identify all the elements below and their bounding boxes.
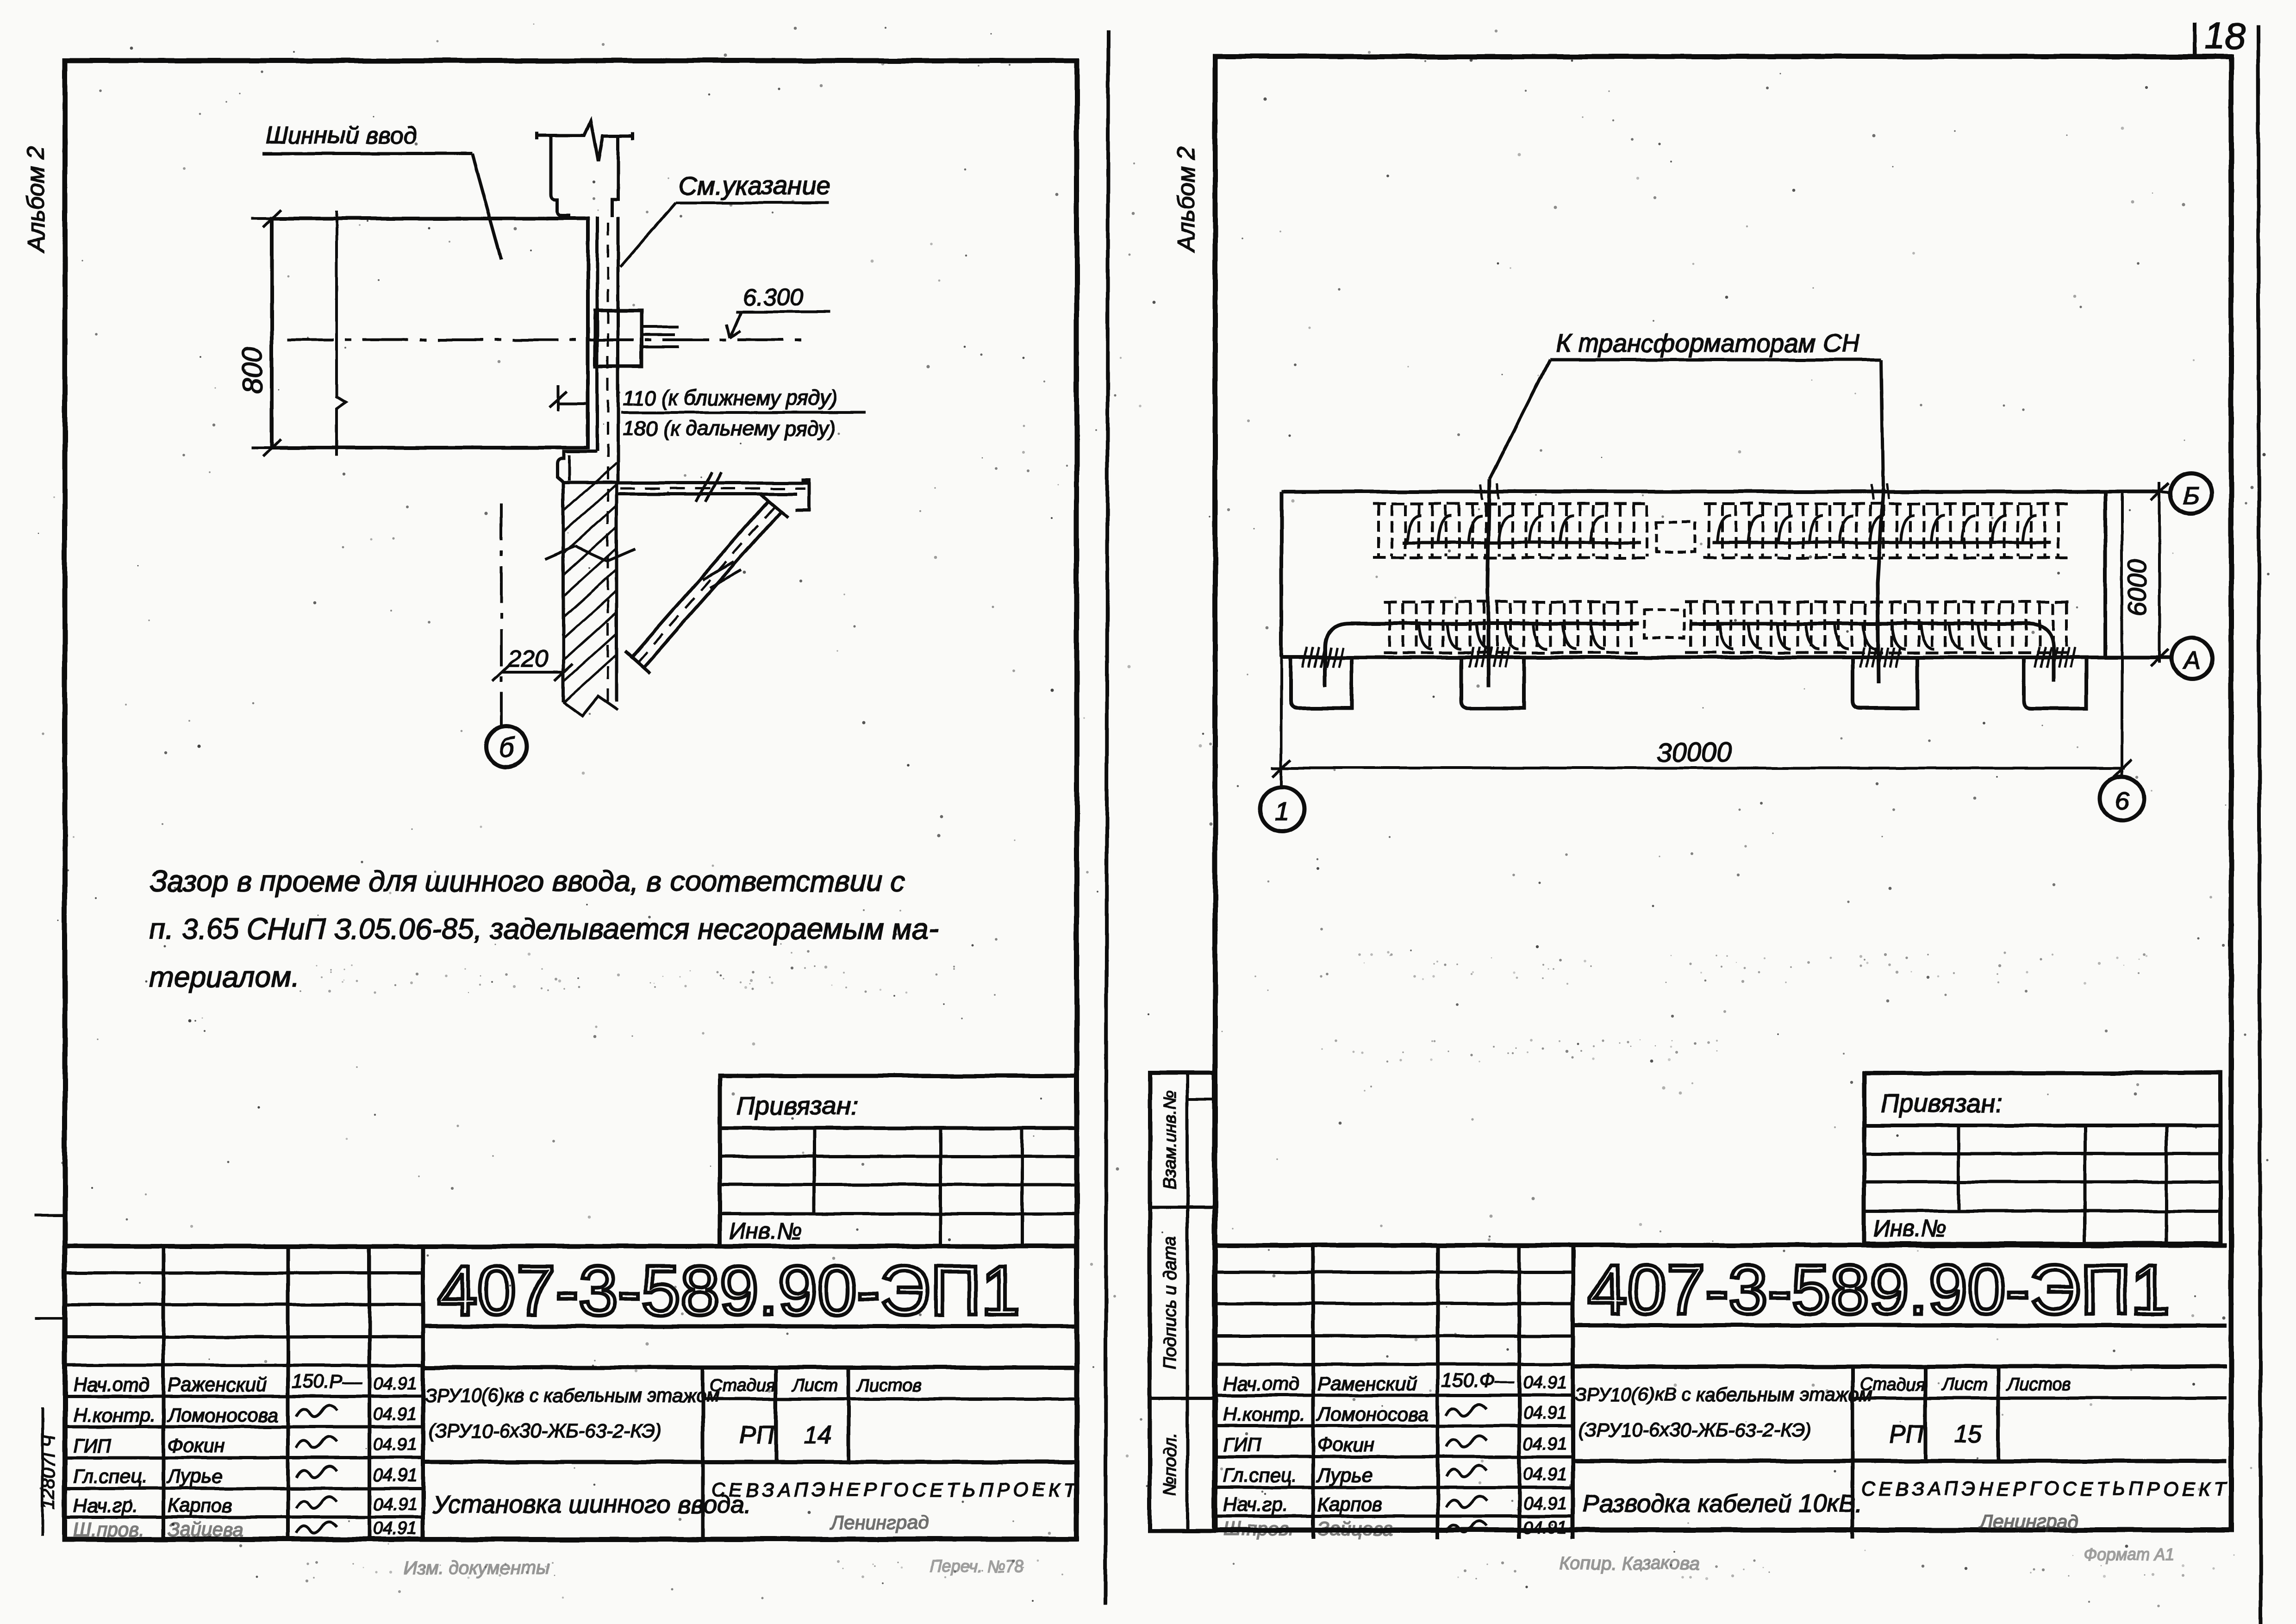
- svg-text:407-3-589.90-ЭП1: 407-3-589.90-ЭП1: [438, 1251, 1020, 1330]
- svg-text:Гл.спец.: Гл.спец.: [1223, 1464, 1297, 1486]
- svg-text:04.91: 04.91: [1523, 1465, 1567, 1484]
- svg-text:(ЗРУ10-6х30-ЖБ-63-2-КЭ): (ЗРУ10-6х30-ЖБ-63-2-КЭ): [428, 1420, 661, 1442]
- svg-text:Шинный ввод: Шинный ввод: [266, 122, 417, 149]
- svg-text:Лурье: Лурье: [1316, 1464, 1373, 1486]
- svg-text:110 (к ближнему ряду): 110 (к ближнему ряду): [623, 386, 837, 410]
- svg-text:Н.контр.: Н.контр.: [1223, 1403, 1305, 1425]
- svg-text:04.91: 04.91: [373, 1435, 417, 1455]
- svg-text:Ш.пров.: Ш.пров.: [1223, 1518, 1294, 1539]
- svg-text:Изм. документы: Изм. документы: [404, 1558, 549, 1578]
- svg-text:Подпись и дата: Подпись и дата: [1160, 1236, 1180, 1369]
- svg-text:(ЗРУ10-6х30-ЖБ-63-2-КЭ): (ЗРУ10-6х30-ЖБ-63-2-КЭ): [1578, 1419, 1811, 1441]
- svg-text:Взам.инв.№: Взам.инв.№: [1160, 1090, 1180, 1189]
- svg-text:Гл.спец.: Гл.спец.: [73, 1465, 147, 1487]
- svg-text:Стадия: Стадия: [710, 1376, 775, 1395]
- svg-text:04.91: 04.91: [373, 1519, 417, 1538]
- svg-text:Фокин: Фокин: [168, 1435, 225, 1456]
- svg-text:п. 3.65 СНиП 3.05.06-85, задел: п. 3.65 СНиП 3.05.06-85, заделывается не…: [150, 913, 938, 945]
- svg-text:Фокин: Фокин: [1317, 1434, 1374, 1455]
- svg-text:СЕВЗАПЭНЕРГОСЕТЬПРОЕКТ: СЕВЗАПЭНЕРГОСЕТЬПРОЕКТ: [1861, 1478, 2229, 1499]
- svg-text:териалом.: териалом.: [150, 961, 299, 993]
- svg-text:Ломоносова: Ломоносова: [166, 1404, 279, 1426]
- svg-text:Зазор в проеме для шинного вво: Зазор в проеме для шинного ввода, в соот…: [150, 865, 905, 898]
- svg-text:04.91: 04.91: [1523, 1518, 1567, 1537]
- svg-text:Ломоносова: Ломоносова: [1316, 1403, 1429, 1425]
- svg-text:К трансформаторам СН: К трансформаторам СН: [1556, 329, 1860, 357]
- svg-text:Зайцева: Зайцева: [168, 1518, 243, 1540]
- svg-text:Переч. №78: Переч. №78: [930, 1556, 1023, 1575]
- svg-text:150.Р—: 150.Р—: [292, 1370, 362, 1392]
- svg-text:04.91: 04.91: [1523, 1373, 1567, 1393]
- svg-text:Ленинград: Ленинград: [829, 1512, 929, 1533]
- svg-text:Листов: Листов: [856, 1376, 921, 1395]
- svg-text:150.Ф—: 150.Ф—: [1441, 1369, 1515, 1391]
- svg-text:Разводка кабелей 10кВ.: Разводка кабелей 10кВ.: [1583, 1490, 1862, 1518]
- svg-text:14: 14: [804, 1421, 832, 1449]
- svg-text:Лист: Лист: [1941, 1375, 1988, 1394]
- svg-text:Формат А1: Формат А1: [2084, 1545, 2175, 1564]
- svg-text:Стадия: Стадия: [1859, 1375, 1925, 1394]
- svg-text:Листов: Листов: [2006, 1375, 2071, 1394]
- svg-text:Б: Б: [2183, 482, 2199, 510]
- svg-text:См.указание: См.указание: [679, 171, 830, 200]
- svg-text:Ш.пров.: Ш.пров.: [73, 1518, 144, 1540]
- svg-text:04.91: 04.91: [1523, 1434, 1567, 1454]
- svg-text:800: 800: [237, 347, 268, 394]
- svg-text:Н.контр.: Н.контр.: [73, 1404, 156, 1426]
- svg-text:30000: 30000: [1657, 737, 1731, 768]
- svg-text:Карпов: Карпов: [168, 1494, 232, 1516]
- svg-text:Карпов: Карпов: [1317, 1493, 1382, 1515]
- svg-text:ЗРУ10(6)кВ с кабельным этажом: ЗРУ10(6)кВ с кабельным этажом: [1575, 1384, 1872, 1405]
- svg-text:Зайцева: Зайцева: [1317, 1518, 1393, 1539]
- svg-text:б: б: [499, 733, 515, 763]
- svg-text:220: 220: [507, 645, 548, 672]
- svg-text:Лист: Лист: [791, 1376, 838, 1395]
- svg-text:6000: 6000: [2122, 559, 2152, 617]
- svg-text:180 (к дальнему ряду): 180 (к дальнему ряду): [623, 417, 836, 440]
- svg-text:ГИП: ГИП: [73, 1435, 112, 1456]
- svg-text:ЗРУ10(6)кв с кабельным этажом: ЗРУ10(6)кв с кабельным этажом: [425, 1385, 719, 1406]
- svg-text:Альбом 2: Альбом 2: [23, 146, 50, 254]
- svg-text:04.91: 04.91: [373, 1495, 417, 1514]
- svg-text:Раменский: Раменский: [1317, 1373, 1416, 1394]
- svg-text:04.91: 04.91: [373, 1374, 417, 1393]
- svg-text:04.91: 04.91: [1523, 1404, 1567, 1423]
- svg-text:Установка шинного ввода.: Установка шинного ввода.: [432, 1491, 752, 1518]
- svg-text:Нач.гр.: Нач.гр.: [1223, 1493, 1288, 1515]
- svg-text:6.300: 6.300: [743, 284, 803, 311]
- svg-text:№подл.: №подл.: [1160, 1433, 1180, 1496]
- svg-text:РП: РП: [739, 1421, 774, 1449]
- svg-text:04.91: 04.91: [373, 1466, 417, 1485]
- svg-text:Ленинград: Ленинград: [1979, 1511, 2078, 1532]
- svg-text:Копир. Казакова: Копир. Казакова: [1559, 1553, 1699, 1574]
- svg-text:Нач.гр.: Нач.гр.: [73, 1494, 138, 1516]
- svg-text:12807ГЧ: 12807ГЧ: [38, 1435, 59, 1509]
- svg-text:А: А: [2183, 647, 2201, 675]
- svg-text:РП: РП: [1889, 1420, 1924, 1448]
- svg-text:15: 15: [1954, 1420, 1982, 1448]
- svg-text:1: 1: [1275, 797, 1289, 826]
- svg-text:407-3-589.90-ЭП1: 407-3-589.90-ЭП1: [1588, 1250, 2170, 1329]
- svg-text:СЕВЗАПЭНЕРГОСЕТЬПРОЕКТ: СЕВЗАПЭНЕРГОСЕТЬПРОЕКТ: [711, 1479, 1079, 1500]
- svg-text:ГИП: ГИП: [1223, 1434, 1262, 1455]
- svg-text:Раженский: Раженский: [168, 1374, 267, 1395]
- svg-text:Нач.отд: Нач.отд: [73, 1374, 150, 1395]
- svg-text:6: 6: [2115, 786, 2129, 815]
- svg-text:04.91: 04.91: [373, 1405, 417, 1424]
- svg-text:Альбом 2: Альбом 2: [1173, 146, 1200, 254]
- svg-text:Лурье: Лурье: [166, 1465, 223, 1487]
- svg-text:Нач.отд: Нач.отд: [1223, 1373, 1299, 1394]
- svg-text:04.91: 04.91: [1523, 1494, 1567, 1513]
- svg-text:18: 18: [2204, 15, 2246, 56]
